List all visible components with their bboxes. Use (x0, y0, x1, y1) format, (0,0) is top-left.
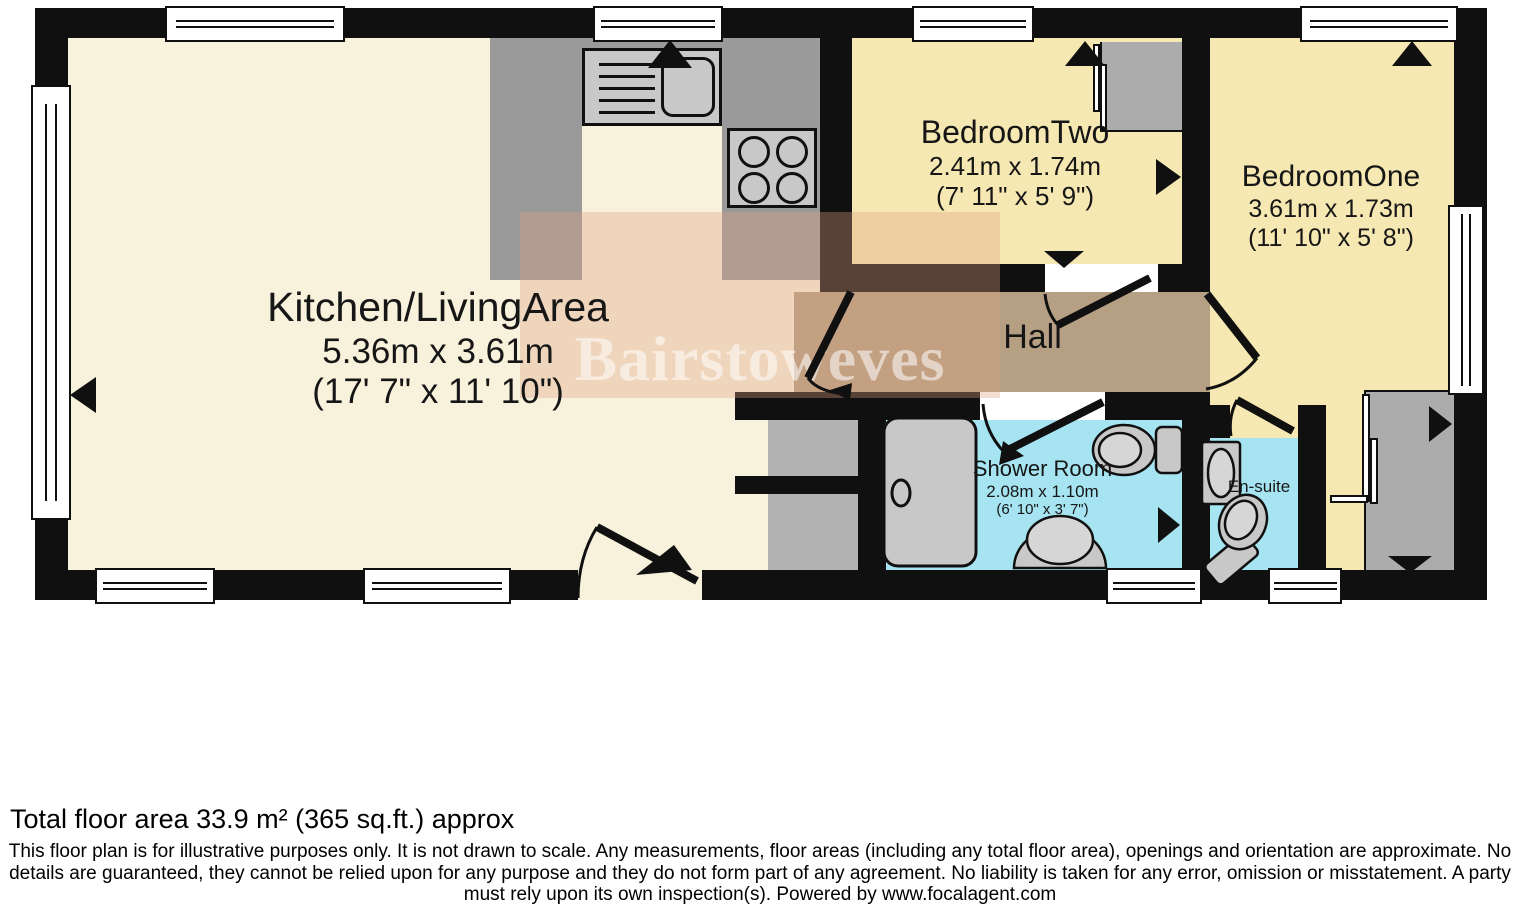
hall-label: Hall (975, 318, 1090, 357)
total-floor-area: Total floor area 33.9 m² (365 sq.ft.) ap… (10, 804, 514, 835)
room-name: Hall (1003, 318, 1062, 357)
kitchen-living-label: Kitchen/LivingArea 5.36m x 3.61m (17' 7"… (168, 284, 708, 413)
floorplan-page: Bairstoweves (0, 0, 1520, 912)
room-name: BedroomTwo (921, 114, 1110, 151)
arrow-right-icon (1429, 406, 1452, 442)
arrow-right-icon (1158, 507, 1180, 543)
room-dim-imperial: (6' 10" x 3' 7") (996, 501, 1088, 518)
room-dim-imperial: (11' 10" x 5' 8") (1248, 224, 1414, 253)
room-name: En-suite (1228, 477, 1290, 497)
hall-kitchen-door (808, 292, 852, 401)
arrow-left-icon (826, 159, 851, 195)
bedroom-two-label: BedroomTwo 2.41m x 1.74m (7' 11" x 5' 9"… (860, 114, 1170, 211)
bedroom-one-door (1206, 294, 1257, 389)
room-dim-metric: 2.41m x 1.74m (929, 151, 1101, 181)
arrow-up-icon (648, 40, 692, 68)
arrow-left-icon (70, 377, 96, 413)
disclaimer-line: This floor plan is for illustrative purp… (0, 841, 1520, 863)
room-name: BedroomOne (1242, 160, 1420, 195)
shower-room-label: Shower Room 2.08m x 1.10m (6' 10" x 3' 7… (935, 456, 1150, 519)
bedroom-one-label: BedroomOne 3.61m x 1.73m (11' 10" x 5' 8… (1218, 160, 1444, 253)
disclaimer-line: must rely upon its own inspection(s). Po… (0, 884, 1520, 906)
room-dim-imperial: (7' 11" x 5' 9") (936, 181, 1094, 211)
room-name: Shower Room (973, 456, 1112, 482)
entrance-door (578, 527, 697, 598)
door-arrow-icon (1197, 406, 1215, 434)
disclaimer: This floor plan is for illustrative purp… (0, 841, 1520, 906)
disclaimer-line: details are guaranteed, they cannot be r… (0, 863, 1520, 885)
washbasin (1014, 516, 1106, 568)
ensuite-label: En-suite (1213, 477, 1305, 497)
arrow-down-icon (1388, 556, 1432, 573)
room-dim-metric: 3.61m x 1.73m (1248, 195, 1413, 224)
arrow-down-icon (1044, 251, 1084, 268)
arrow-up-icon (1392, 41, 1432, 66)
room-name: Kitchen/LivingArea (267, 284, 609, 332)
room-dim-metric: 2.08m x 1.10m (986, 482, 1098, 502)
ensuite-door (1197, 400, 1293, 436)
arrow-up-icon (1065, 41, 1105, 66)
room-dim-imperial: (17' 7" x 11' 10") (312, 372, 564, 413)
room-dim-metric: 5.36m x 3.61m (322, 332, 554, 373)
